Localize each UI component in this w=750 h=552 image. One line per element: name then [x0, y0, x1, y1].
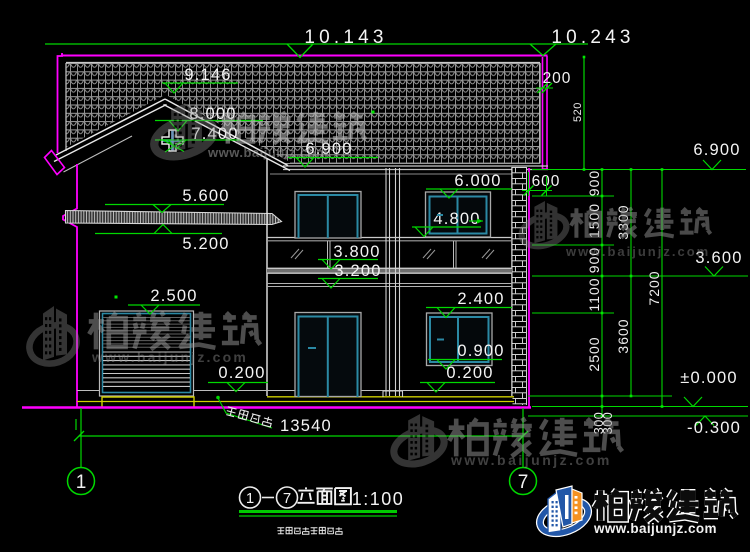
svg-text:3600: 3600	[615, 318, 631, 353]
svg-text:www.baijunjz.com: www.baijunjz.com	[91, 349, 248, 365]
svg-text:900: 900	[586, 170, 602, 196]
svg-text:1:100: 1:100	[352, 489, 405, 509]
svg-text:0.900: 0.900	[457, 342, 504, 360]
svg-text:www.baijunjz.com: www.baijunjz.com	[565, 244, 710, 259]
svg-text:7: 7	[283, 490, 291, 507]
svg-text:±0.000: ±0.000	[680, 369, 738, 387]
svg-text:4.800: 4.800	[433, 210, 480, 228]
svg-text:1: 1	[76, 472, 87, 493]
svg-text:3.800: 3.800	[333, 243, 380, 261]
svg-text:2.400: 2.400	[457, 290, 504, 308]
svg-text:520: 520	[572, 102, 584, 122]
svg-text:2.500: 2.500	[150, 287, 197, 305]
svg-text:3.200: 3.200	[334, 262, 381, 280]
svg-text:0.200: 0.200	[446, 364, 493, 382]
svg-text:13540: 13540	[280, 417, 332, 435]
svg-text:10.143: 10.143	[304, 27, 387, 48]
svg-text:5.600: 5.600	[182, 187, 229, 205]
svg-text:10.243: 10.243	[551, 27, 634, 48]
svg-text:www.baijunjz.com: www.baijunjz.com	[450, 452, 612, 468]
svg-text:0.200: 0.200	[218, 364, 265, 382]
svg-text:2500: 2500	[586, 336, 602, 371]
svg-text:1100: 1100	[586, 277, 602, 311]
svg-text:www.baijunjz.com: www.baijunjz.com	[207, 145, 328, 160]
svg-text:1: 1	[246, 490, 254, 507]
svg-text:5.200: 5.200	[182, 235, 229, 253]
svg-text:7200: 7200	[646, 270, 662, 305]
svg-text:www.baijunjz.com: www.baijunjz.com	[593, 521, 717, 536]
svg-text:7: 7	[518, 472, 529, 493]
svg-text:6.000: 6.000	[454, 172, 501, 190]
svg-text:9.146: 9.146	[184, 66, 231, 84]
svg-text:-0.300: -0.300	[687, 419, 741, 437]
svg-text:6.900: 6.900	[693, 141, 740, 159]
